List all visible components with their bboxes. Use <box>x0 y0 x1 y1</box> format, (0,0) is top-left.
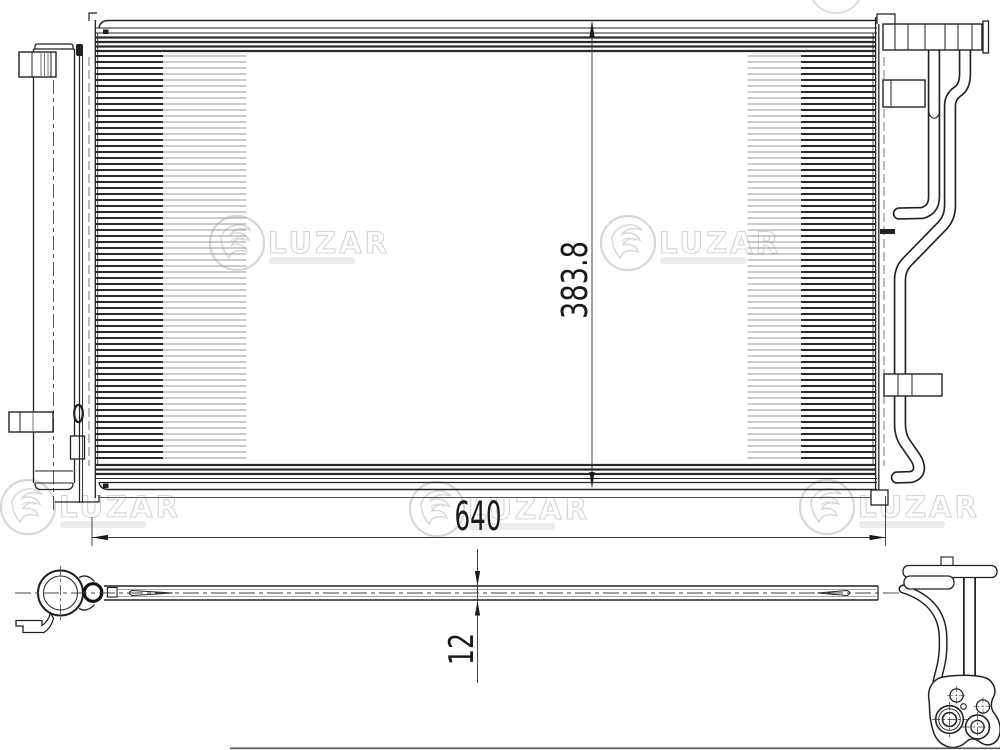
dimension-height: 383.8 <box>555 21 596 488</box>
connector-assembly <box>903 557 1000 747</box>
dimension-height-label: 383.8 <box>555 241 596 319</box>
front-view: 383.8 <box>9 13 989 512</box>
drier-top-bracket <box>19 52 56 77</box>
pipe-section <box>84 584 102 602</box>
right-fittings <box>880 21 989 478</box>
bottom-view: 12 <box>15 549 1000 747</box>
lower-bracket <box>884 374 942 396</box>
dimension-width-label: 640 <box>455 494 502 540</box>
bracket-edge-b <box>904 576 954 589</box>
arrow-right-icon <box>870 535 886 540</box>
dimension-width: 640 <box>92 494 886 546</box>
arrow-left-icon <box>92 535 108 540</box>
arrow-down-icon <box>589 472 594 488</box>
arrow-down-icon <box>475 571 480 586</box>
drier-foot-bracket <box>16 613 54 633</box>
arrow-up-icon <box>589 21 594 37</box>
tube-left-outline <box>899 50 934 214</box>
mid-block <box>883 80 925 107</box>
drier-sight-glass <box>74 405 83 422</box>
drier-profile <box>16 571 117 633</box>
left-side-plate <box>55 13 99 503</box>
weld-tick <box>880 229 895 234</box>
dimension-thickness-label: 12 <box>442 633 482 665</box>
drawing-canvas: LUZAR <box>0 0 1000 750</box>
condenser-technical-drawing: LUZAR <box>0 0 1000 750</box>
dimension-thickness: 12 <box>442 549 482 683</box>
receiver-drier <box>9 44 85 512</box>
watermark-fragment-arc <box>809 0 863 13</box>
drier-bottom-bracket <box>9 412 53 432</box>
top-bracket <box>883 21 989 53</box>
arrow-up-icon <box>475 601 480 616</box>
